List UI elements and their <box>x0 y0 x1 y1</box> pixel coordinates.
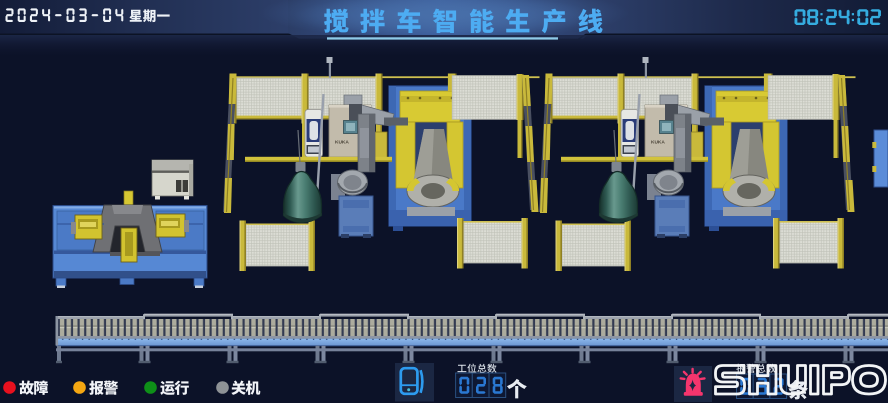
svg-text:KUKA: KUKA <box>651 140 665 146</box>
svg-text:KUKA: KUKA <box>335 140 349 146</box>
